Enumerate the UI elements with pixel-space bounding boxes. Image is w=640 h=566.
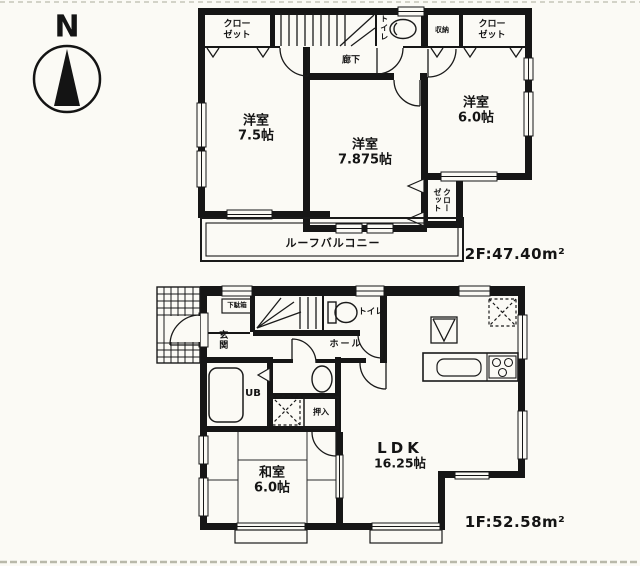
toilet-2f-label: トイレ [379,15,388,42]
shoe-cabinet-label: 下駄箱 [227,302,247,310]
closet-mid-2f-label: クロー ゼット [433,188,452,212]
storm-shutter-boxes [235,530,442,543]
corridor-2f-label: 廊下 [342,56,360,67]
japanese-room-label: 和室 6.0帖 [254,466,290,497]
vent-symbol-icon [431,317,457,343]
stairs-2f-icon [281,13,375,46]
toilet-1f-icon [328,302,357,323]
scan-artifact-lines [0,2,640,562]
hall-label: ホール [329,340,362,351]
washing-machine-icon [271,396,300,425]
toilet-2f-icon [390,20,416,39]
floor1-walls [200,286,525,530]
floor2-area-label: 2F:47.40m² [465,246,566,264]
ldk-size-label: 16.25帖 [374,457,426,472]
closet-left-2f-label: クロー ゼット [223,19,250,40]
closet-hanger-marks-2f [207,48,522,57]
entrance-label: 玄関 [217,330,228,350]
room-7875-label: 洋室 7.875帖 [338,138,392,169]
roof-balcony-label: ルーフバルコニー [285,238,380,251]
washbasin-icon [312,366,332,392]
room-60-label: 洋室 6.0帖 [458,96,494,127]
compass-north-label: N [54,9,79,44]
room-75-label: 洋室 7.5帖 [238,114,274,145]
floor1-area-label: 1F:52.58m² [465,514,566,532]
closet-right-2f-label: クロー ゼット [478,19,505,40]
sink-icon [437,359,481,376]
toilet-1f-label: トイレ [358,307,384,317]
compass-icon [34,46,100,112]
unit-bath-label: UB [245,388,261,400]
floor1-windows [199,286,527,530]
refrigerator-icon [489,299,516,326]
kitchen-counter-icon [423,353,518,381]
floorplan-canvas: N クロー ゼット 廊下 トイレ 収納 クロー ゼット 洋室 7.5帖 洋室 7… [0,0,640,566]
floorplan-drawing [0,0,640,566]
storage-2f-label: 収納 [435,26,449,34]
stove-icon [489,356,516,378]
stairs-1f-icon [257,297,316,329]
oshiire-label: 押入 [313,407,329,416]
